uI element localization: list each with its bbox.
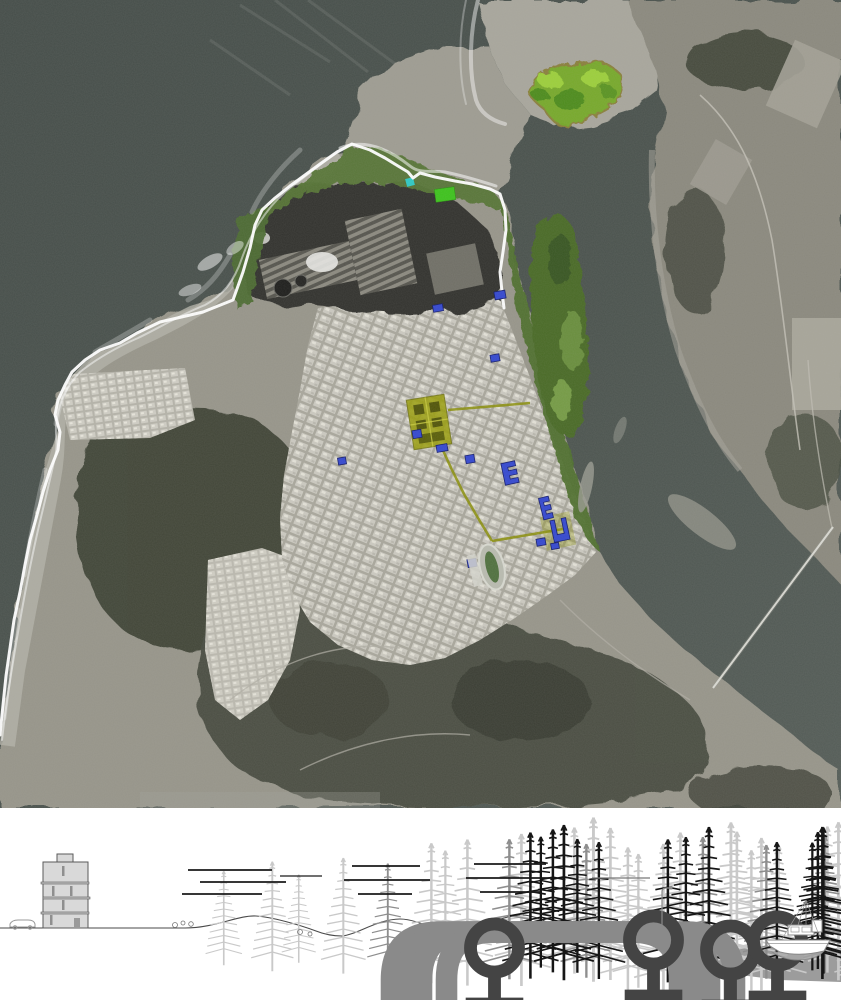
doorway (74, 918, 80, 928)
coastal-section-drawing (0, 808, 841, 1000)
boat-cabin (788, 925, 814, 935)
pine-instance (206, 871, 242, 965)
aerial-map (0, 0, 841, 808)
section-building (41, 854, 90, 928)
masterplan-figure (0, 0, 841, 1000)
photo-grain (0, 0, 841, 808)
pine-instance (321, 858, 366, 974)
roof-box (57, 854, 73, 862)
pine-instance (282, 875, 316, 963)
